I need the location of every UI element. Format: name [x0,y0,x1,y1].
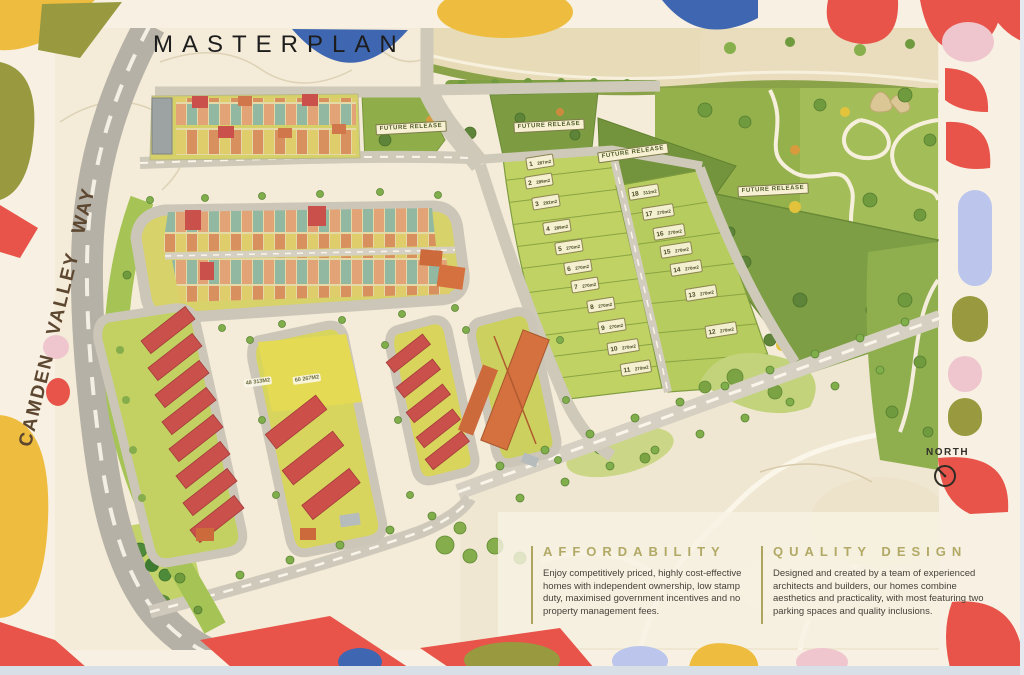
window-edge-right [1020,0,1024,675]
border-blobs [0,0,1024,675]
border-ring [0,0,1024,675]
window-edge-bottom [0,666,1024,675]
decorative-border [0,0,1024,675]
